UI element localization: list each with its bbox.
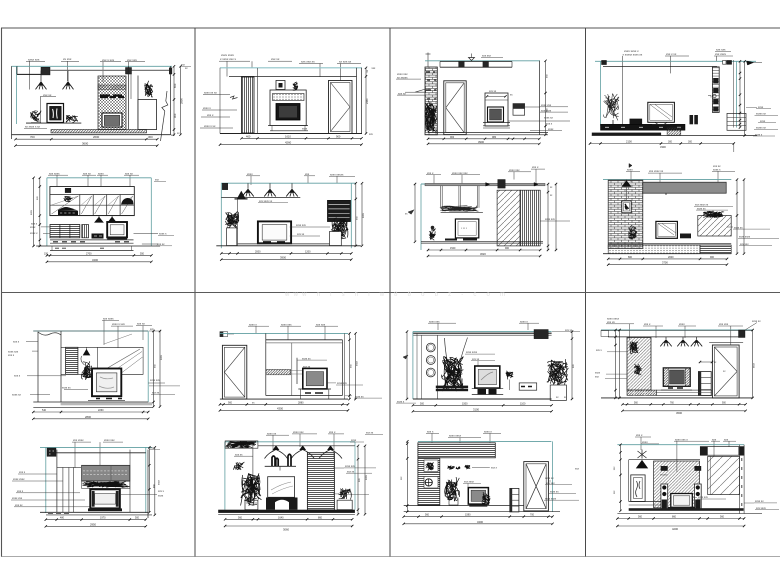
svg-text:xxxx: xxxx	[157, 479, 160, 485]
svg-text:xxxx x: xxxx x	[484, 430, 492, 434]
svg-text:xxx xxx xx: xxx xxx xx	[301, 59, 315, 63]
svg-text:xxxx xxxx: xxxx xxxx	[466, 351, 478, 354]
svg-text:4260: 4260	[285, 141, 292, 145]
svg-text:xxxx xxx: xxxx xxx	[296, 224, 307, 227]
svg-text:500: 500	[135, 517, 140, 520]
svg-text:xxx xxx: xxx xxx	[316, 322, 326, 326]
svg-text:480: 480	[60, 517, 65, 520]
svg-text:900: 900	[450, 136, 455, 139]
svg-text:xxxx: xxxx	[362, 212, 365, 218]
svg-text:3100: 3100	[473, 407, 479, 411]
svg-text:xxxx: xxxx	[355, 360, 358, 366]
svg-text:2800: 2800	[179, 98, 183, 104]
svg-text:xxxx xxx: xxxx xxx	[545, 218, 556, 221]
svg-text:xxx xxxx: xxx xxxx	[103, 317, 114, 321]
svg-text:xxx x: xxx x	[636, 433, 643, 437]
svg-text:xxxx xxx: xxxx xxx	[281, 322, 292, 326]
svg-text:300: 300	[668, 141, 673, 144]
svg-text:xxxx xx: xxxx xx	[12, 394, 21, 397]
svg-text:560: 560	[720, 516, 725, 519]
svg-text:xxxx xxxxx: xxxx xxxxx	[330, 172, 344, 176]
svg-text:860: 860	[318, 516, 323, 519]
svg-text:xxx: xxx	[712, 437, 717, 441]
svg-text:xxxx xx: xxxx xx	[62, 387, 71, 390]
svg-text:3900: 3900	[478, 140, 484, 144]
svg-text:xxxx: xxxx	[548, 128, 554, 131]
svg-text:3600: 3600	[82, 142, 89, 146]
svg-text:xxx xx: xxx xx	[607, 320, 615, 324]
svg-text:xxx xxxx: xxx xxxx	[715, 52, 726, 56]
svg-text:xxx xx: xxx xx	[137, 322, 145, 326]
svg-text:1640: 1640	[278, 516, 284, 519]
svg-text:xxxx xxx: xxxx xxx	[345, 465, 356, 468]
svg-text:xxx x: xxx x	[8, 354, 15, 357]
svg-text:xxxx xxx: xxxx xxx	[509, 168, 520, 172]
svg-text:xxx xxxx: xxx xxxx	[49, 171, 60, 175]
svg-text:2450: 2450	[366, 98, 369, 104]
svg-text:xx xxxxx: xx xxxxx	[397, 75, 408, 79]
svg-text:560: 560	[425, 514, 430, 517]
svg-text:xxxx xx: xxxx xx	[550, 491, 559, 494]
svg-text:xxxx xx: xxxx xx	[697, 207, 706, 210]
svg-text:xxxx xxx: xxxx xxx	[12, 497, 23, 500]
svg-text:1100: 1100	[520, 402, 526, 405]
svg-text:1590: 1590	[465, 514, 471, 517]
svg-text:900: 900	[710, 256, 715, 259]
svg-text:xx xxxx x xx: xx xxxx x xx	[25, 125, 41, 129]
svg-text:1200: 1200	[305, 250, 311, 253]
svg-text:xxxxx xx: xxxxx xx	[756, 113, 767, 116]
svg-text:900: 900	[336, 134, 341, 138]
svg-text:560: 560	[638, 516, 643, 519]
svg-text:3060: 3060	[283, 528, 289, 532]
svg-text:3400: 3400	[92, 258, 98, 262]
svg-text:800: 800	[628, 256, 633, 259]
svg-text:xxxx xxx: xxxx xxx	[104, 438, 115, 442]
svg-text:1970: 1970	[100, 517, 106, 520]
svg-text:xxxx: xxxx	[302, 128, 308, 131]
svg-text:xxx: xxx	[305, 172, 310, 176]
svg-text:xxxx xxx: xxxx xxx	[541, 104, 552, 107]
svg-text:xxxx: xxxx	[679, 322, 685, 326]
svg-text:xxx xxx: xxx xxx	[546, 482, 555, 485]
svg-text:xxxx xxx: xxxx xxx	[293, 430, 304, 434]
svg-text:xxxx x: xxxx x	[397, 400, 405, 403]
svg-text:xxxx xxx: xxxx xxx	[698, 496, 709, 499]
svg-text:860: 860	[672, 516, 677, 519]
svg-text:xxx x: xxx x	[427, 430, 434, 434]
svg-text:xxx xxx: xxx xxx	[482, 55, 491, 58]
svg-text:1540: 1540	[450, 247, 456, 250]
svg-text:xxxx xx: xxxx xx	[752, 320, 761, 323]
svg-text:xx xxx: xx xxx	[63, 57, 72, 61]
svg-text:xxxx: xxxx	[160, 354, 163, 360]
svg-text:xxxx xxx: xxxx xxx	[429, 319, 440, 323]
svg-text:xxx x: xxx x	[13, 340, 20, 343]
svg-text:xxx x: xxx x	[644, 322, 651, 326]
svg-text:xxxx: xxxx	[98, 171, 104, 175]
svg-text:xxxx xxxx: xxxx xxxx	[545, 497, 557, 500]
svg-text:xxxx: xxxx	[752, 362, 755, 368]
svg-text:xxxx xxx: xxxx xxx	[150, 379, 161, 382]
svg-text:xxx xx: xxx xx	[271, 57, 280, 61]
svg-text:xxxx: xxxx	[642, 440, 648, 444]
svg-text:xxxx xxx: xxxx xxx	[8, 350, 19, 353]
svg-text:2100: 2100	[626, 140, 632, 144]
svg-text:xxxx xxx: xxxx xxx	[337, 382, 348, 385]
svg-text:xxxx: xxxx	[30, 226, 36, 229]
svg-text:xx xxx xx: xx xxx xx	[339, 59, 352, 63]
svg-text:xxx xxxx xx: xxx xxxx xx	[649, 169, 664, 173]
svg-text:xxxx x: xxxx x	[30, 232, 38, 235]
svg-text:xxxx xx: xxxx xx	[755, 500, 764, 503]
svg-text:xxxx xx: xxxx xx	[267, 431, 277, 435]
svg-text:xxx x: xxx x	[329, 430, 336, 434]
svg-text:xxxx: xxxx	[351, 439, 357, 442]
svg-text:xxx x xx: xxx x xx	[666, 52, 677, 56]
svg-text:xxx xx: xxx xx	[489, 90, 497, 93]
svg-text:900: 900	[505, 247, 510, 250]
svg-text:xxx x: xxx x	[207, 113, 214, 117]
svg-text:1610: 1610	[285, 134, 291, 138]
svg-text:xxx x: xxx x	[546, 123, 553, 126]
svg-text:300: 300	[688, 141, 693, 144]
svg-text:xxx xxxx: xxx xxxx	[464, 481, 475, 484]
svg-text:3900: 3900	[280, 256, 286, 260]
svg-text:xxx x: xxx x	[158, 490, 165, 493]
svg-text:560: 560	[238, 516, 243, 519]
svg-text:xxxx x xxx: xxxx x xxx	[112, 322, 125, 326]
svg-text:xxx x: xxx x	[596, 349, 602, 352]
svg-text:xxxx xx: xxxx xx	[545, 477, 554, 480]
svg-text:2700: 2700	[86, 252, 92, 255]
svg-text:900: 900	[173, 113, 177, 118]
svg-text:xxxx x: xxxx x	[159, 233, 167, 236]
svg-text:xxx xxx: xxx xxx	[740, 243, 749, 246]
svg-text:xxx xxxx xx: xxx xxxx xx	[259, 200, 273, 203]
svg-text:xxx xxxx xx: xxx xxxx xx	[695, 204, 709, 207]
svg-text:xxxx: xxxx	[595, 371, 601, 374]
svg-text:xxx x: xxx x	[17, 490, 24, 493]
svg-text:2260: 2260	[98, 409, 104, 412]
svg-text:xxxx xxxx: xxxx xxxx	[13, 478, 25, 481]
svg-text:xxx x: xxx x	[532, 165, 539, 169]
svg-text:xxxx x xx: xxxx x xx	[204, 124, 216, 128]
svg-text:2000: 2000	[668, 256, 674, 259]
svg-text:700: 700	[30, 135, 35, 139]
svg-text:xxxx: xxxx	[158, 495, 164, 498]
svg-text:xxx x: xxx x	[491, 466, 498, 469]
svg-text:xxx xx: xxx xx	[15, 504, 23, 507]
svg-text:xxx xxxx: xxx xxxx	[73, 438, 84, 442]
svg-text:900: 900	[228, 401, 233, 404]
svg-text:xxx xx: xxx xx	[347, 470, 355, 473]
svg-text:3400: 3400	[477, 520, 483, 524]
svg-text:3700: 3700	[662, 261, 668, 265]
svg-text:540: 540	[42, 409, 47, 412]
svg-text:650: 650	[173, 83, 177, 88]
svg-text:xxxx x: xxxx x	[249, 322, 257, 326]
svg-text:xxxx x: xxxx x	[713, 168, 721, 171]
svg-text:x xxxxx xxxx xx: x xxxxx xxxx xx	[623, 53, 643, 57]
svg-text:xxxx xxx xxx: xxxx xxx xxx	[452, 171, 468, 175]
svg-text:xxx x: xxx x	[427, 171, 434, 175]
svg-text:4500: 4500	[676, 411, 682, 415]
svg-text:xxx xxx: xxx xxx	[719, 322, 729, 326]
svg-text:xxx x: xxx x	[14, 375, 21, 378]
svg-text:xxx x xxx: xxx x xxx	[102, 58, 115, 62]
svg-text:x xx x: x xx x	[461, 227, 468, 230]
svg-text:xxxx xxxx: xxxx xxxx	[449, 434, 462, 438]
svg-text:xxxx x: xxxx x	[203, 106, 211, 110]
svg-text:xxx xx: xxx xx	[125, 171, 133, 175]
svg-text:xxx xxx: xxx xxx	[127, 58, 137, 62]
svg-text:xxxx: xxxx	[365, 474, 368, 480]
svg-text:xxxx xx: xxxx xx	[302, 357, 311, 360]
svg-text:xxxx x: xxxx x	[520, 319, 528, 323]
svg-text:4300: 4300	[277, 406, 283, 410]
svg-text:xxx xxx: xxx xxx	[716, 48, 726, 52]
svg-text:700: 700	[530, 514, 535, 517]
svg-text:xxx xxxx: xxx xxxx	[756, 507, 767, 510]
svg-text:xxxx xxxx: xxxx xxxx	[739, 236, 751, 239]
svg-text:xxx: xxx	[724, 437, 729, 441]
svg-text:xxxx: xxxx	[627, 167, 633, 171]
svg-text:xxxx xxx x: xxxx xxx x	[675, 437, 688, 441]
svg-text:550: 550	[140, 252, 145, 255]
svg-text:xxx xx: xxx xx	[43, 93, 52, 97]
svg-text:2800: 2800	[85, 415, 91, 419]
svg-text:460: 460	[246, 134, 251, 138]
svg-text:xxxx: xxxx	[30, 209, 33, 215]
svg-text:500: 500	[420, 402, 425, 405]
svg-text:xxxx xxx: xxxx xxx	[28, 58, 40, 62]
svg-text:3620: 3620	[480, 252, 486, 256]
svg-text:xxx xx: xxx xx	[157, 243, 165, 246]
svg-text:xxx xx: xxx xx	[297, 233, 305, 236]
svg-text:2880: 2880	[298, 401, 304, 404]
svg-text:xxx x: xxx x	[19, 471, 26, 474]
svg-text:xxxx: xxxx	[247, 172, 253, 176]
svg-text:2000: 2000	[255, 250, 261, 253]
svg-text:300: 300	[148, 135, 153, 139]
svg-text:x xxxx xxx x: x xxxx xxx x	[220, 57, 237, 61]
svg-text:xxx xx: xxx xx	[472, 358, 480, 361]
svg-text:xxx xx: xxx xx	[235, 453, 243, 456]
svg-text:xxx xx: xxx xx	[152, 392, 160, 395]
svg-text:980: 980	[492, 136, 497, 139]
svg-text:2600: 2600	[93, 135, 100, 139]
svg-text:xxxxxx: xxxxxx	[660, 473, 668, 476]
svg-text:xxx xx: xxx xx	[83, 171, 91, 175]
svg-text:2950: 2950	[90, 522, 96, 526]
svg-text:1500: 1500	[462, 402, 468, 405]
svg-text:4200: 4200	[672, 527, 678, 531]
svg-text:xxx xx: xxx xx	[366, 432, 374, 435]
svg-text:xxxx xx: xxxx xx	[734, 226, 743, 229]
svg-text:xxxx xx xx: xxxx xx xx	[204, 91, 217, 95]
svg-text:150: 150	[44, 252, 49, 255]
svg-text:xxx xx: xxx xx	[398, 91, 406, 95]
svg-text:3300: 3300	[660, 145, 666, 149]
